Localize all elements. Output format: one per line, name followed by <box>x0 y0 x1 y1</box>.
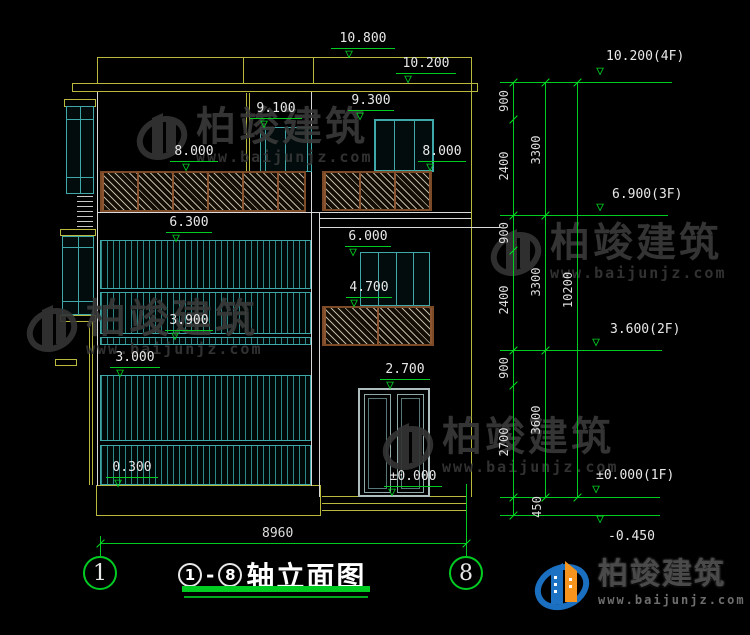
rain-pipe <box>246 93 247 172</box>
dim-value-width: 8960 <box>262 526 293 541</box>
rain-pipe <box>92 322 93 485</box>
floor-level-1f: ±0.000(1F) <box>596 468 674 483</box>
level-marker-6.300: 6.300 <box>166 215 212 233</box>
bay-window-upper <box>66 106 94 194</box>
dim-value: 2700 <box>497 428 511 457</box>
logo-url: www.baijunjz.com <box>598 593 746 607</box>
title-axis-end: 8 <box>218 563 242 587</box>
dim-chain-line-inner <box>513 82 514 515</box>
bay-sill <box>55 359 77 366</box>
right-wall-edge <box>471 57 472 497</box>
logo-brand: 柏竣建筑 <box>598 560 746 590</box>
title-separator: - <box>206 563 214 587</box>
level-marker-6.000: 6.000 <box>345 229 391 247</box>
dim-value: 3300 <box>529 136 543 165</box>
level-line-1f <box>500 497 660 498</box>
dim-chain-line-outer <box>577 82 578 497</box>
entry-step <box>322 510 466 511</box>
balcony-railing-3f <box>322 306 434 346</box>
title-underline-thick <box>182 586 370 592</box>
floor-level-2f: 3.600(2F) <box>610 322 680 337</box>
axis-bubble-8: 8 <box>449 556 483 590</box>
title-axis-start: 1 <box>178 563 202 587</box>
level-marker-0.300: 0.300 <box>106 460 158 478</box>
parapet-post <box>313 57 314 83</box>
dim-value: 3300 <box>529 268 543 297</box>
level-line-4f <box>500 82 672 83</box>
dim-value: 2400 <box>497 152 511 181</box>
floor-level-4f: 10.200(4F) <box>606 49 684 64</box>
bay-sill <box>60 229 96 236</box>
window-4f-left <box>260 127 312 172</box>
floor-slab-line-3f <box>97 212 471 213</box>
level-marker-3.900: 3.900 <box>165 313 213 331</box>
title-underline-thin <box>184 596 368 598</box>
dim-value: 3600 <box>529 406 543 435</box>
level-marker-2.700: 2.700 <box>380 362 430 380</box>
vent-louver <box>77 196 93 232</box>
balcony-railing-4f-right <box>322 171 432 211</box>
level-marker-10.200: 10.200 <box>396 56 456 74</box>
level-marker-8.000-left: 8.000 <box>170 144 218 162</box>
axis-bubble-1: 1 <box>83 556 117 590</box>
watermark-url: www.baijunjz.com <box>442 458 619 476</box>
roof-slab <box>72 83 478 92</box>
level-marker-3.000: 3.000 <box>110 350 160 368</box>
floor-level-ground: -0.450 <box>608 529 655 544</box>
level-marker-4.700: 4.700 <box>346 280 392 298</box>
rain-pipe <box>89 322 90 485</box>
watermark: 柏竣建筑 www.baijunjz.com <box>490 224 727 282</box>
level-marker-10.800: 10.800 <box>331 31 395 49</box>
bay-window-lower <box>62 236 94 315</box>
base-plinth <box>96 485 321 516</box>
entry-step <box>322 503 466 504</box>
level-line-2f <box>500 350 662 351</box>
level-marker-9.300: 9.300 <box>348 93 394 111</box>
cad-elevation-canvas: 柏竣建筑 www.baijunjz.com 柏竣建筑 www.baijunjz.… <box>0 0 750 635</box>
dim-value: 900 <box>497 90 511 112</box>
dim-line-width <box>100 543 466 544</box>
floor-slab-line <box>319 227 500 228</box>
dim-value: 900 <box>497 357 511 379</box>
level-line-ground <box>500 515 660 516</box>
brand-logo: 柏竣建筑 www.baijunjz.com <box>534 554 746 612</box>
level-marker-9.100: 9.100 <box>250 101 302 119</box>
dim-value: 2400 <box>497 286 511 315</box>
dim-value-total: 10200 <box>561 272 575 308</box>
left-wall-edge <box>97 92 98 486</box>
parapet-post <box>97 57 98 83</box>
dim-value: 900 <box>497 222 511 244</box>
wall-pier <box>319 213 320 497</box>
floor-slab-line <box>319 218 471 219</box>
balcony-railing-4f-left <box>100 171 306 212</box>
level-marker-8.000-right: 8.000 <box>418 144 466 162</box>
brand-logo-icon <box>534 554 590 612</box>
bay-sill <box>60 315 96 322</box>
parapet-post <box>243 57 244 83</box>
dim-value: 450 <box>530 496 544 518</box>
level-marker-0.000: ±0.000 <box>384 469 442 487</box>
dim-chain-line-mid <box>545 82 546 497</box>
axis-line-8 <box>466 484 467 557</box>
floor-level-3f: 6.900(3F) <box>612 187 682 202</box>
axis-line-1 <box>100 536 101 557</box>
level-line-3f <box>500 215 668 216</box>
